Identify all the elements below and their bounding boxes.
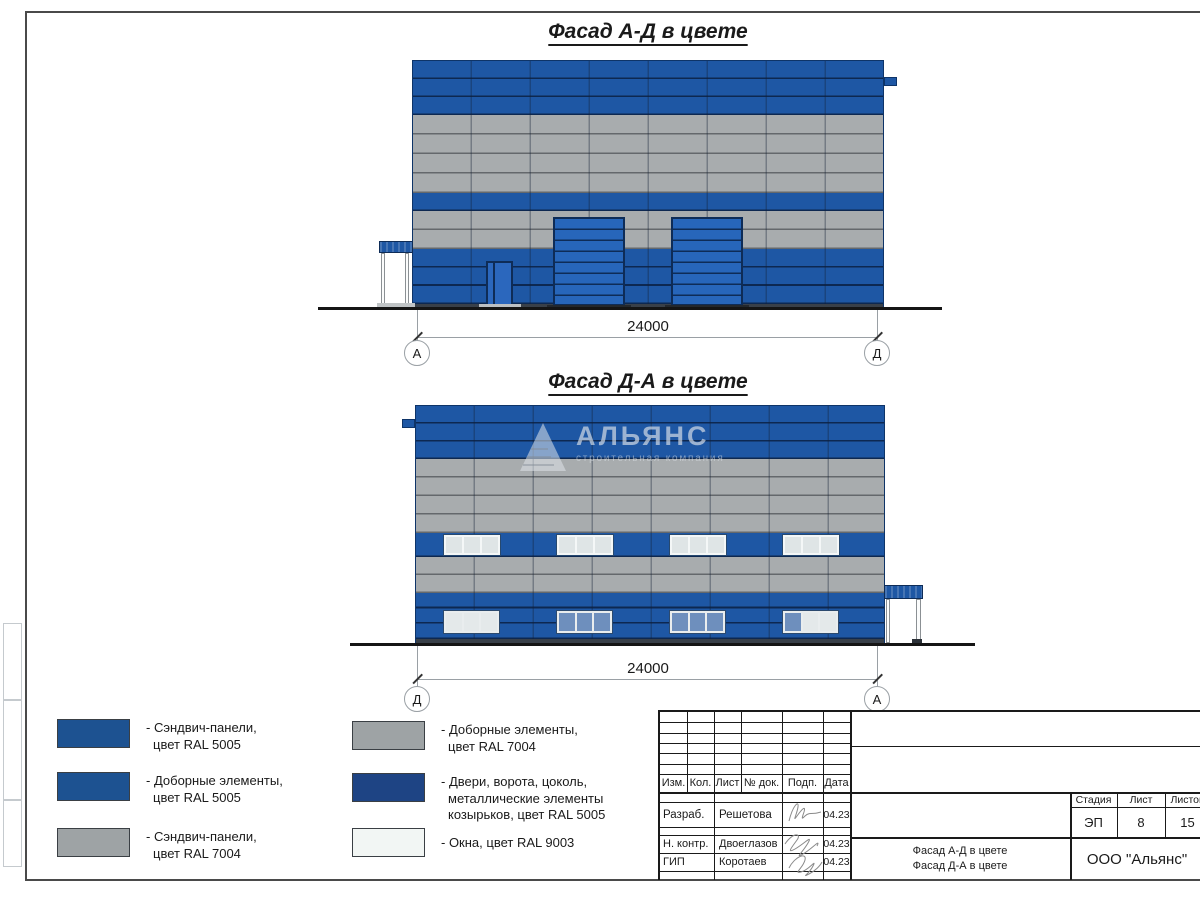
canopy-roof	[884, 585, 923, 599]
role-gip: ГИП	[660, 853, 717, 871]
stage-value: ЭП	[1070, 808, 1117, 837]
divider	[660, 764, 850, 765]
sheet-label: Лист	[1117, 793, 1165, 807]
axis-marker-a: А	[404, 340, 430, 366]
col-list: Лист	[714, 774, 741, 792]
role-nkontr: Н. контр.	[660, 835, 717, 853]
divider	[660, 753, 850, 754]
window	[782, 534, 840, 556]
legend-swatch	[57, 828, 130, 857]
panel-joints	[413, 61, 883, 304]
watermark-subtitle: строительная компания	[576, 453, 725, 464]
divider	[660, 792, 850, 794]
facade-da-title: Фасад Д-А в цвете	[412, 370, 884, 394]
alliance-logo-icon	[518, 421, 568, 473]
window	[669, 534, 727, 556]
gate-2	[671, 217, 743, 306]
entrance-door	[486, 261, 513, 306]
divider	[660, 733, 850, 734]
col-podp: Подп.	[782, 774, 823, 792]
name-reshetova: Решетова	[716, 802, 785, 827]
canopy-roof	[379, 241, 413, 253]
legend-item: - Двери, ворота, цоколь,металлические эл…	[352, 773, 605, 824]
legend-swatch	[57, 719, 130, 748]
margin-stamp-box	[3, 700, 22, 800]
window	[556, 610, 613, 634]
divider	[660, 722, 850, 723]
legend-swatch	[352, 828, 425, 857]
col-data: Дата	[823, 774, 850, 792]
legend-item: - Сэндвич-панели,цвет RAL 7004	[57, 828, 257, 862]
watermark-title: АЛЬЯНС	[576, 421, 725, 451]
col-kol: Кол.	[687, 774, 714, 792]
canopy-post	[886, 599, 890, 643]
window	[443, 534, 501, 556]
window	[443, 610, 500, 634]
roof-outlet	[884, 77, 897, 86]
legend-item: - Окна, цвет RAL 9003	[352, 828, 574, 857]
company-watermark: АЛЬЯНС строительная компания	[518, 421, 725, 473]
legend-label: - Окна, цвет RAL 9003	[441, 828, 574, 857]
drawing-sheet: Фасад А-Д в цвете 24000 А Д Фасад Д-А в …	[0, 0, 1200, 900]
date-razrab: 04.23	[823, 802, 850, 827]
legend-swatch	[352, 721, 425, 750]
document-title: Фасад А-Д в цвете Фасад Д-А в цвете	[850, 838, 1070, 880]
stage-label: Стадия	[1070, 793, 1117, 807]
dimension-value: 24000	[412, 318, 884, 335]
legend-label: - Двери, ворота, цоколь,металлические эл…	[441, 773, 605, 824]
signature-dvoeglazov-korotaev	[781, 828, 825, 878]
legend-swatch	[352, 773, 425, 802]
canopy-post	[381, 253, 385, 307]
window	[782, 610, 839, 634]
legend-label: - Доборные элементы,цвет RAL 7004	[441, 721, 578, 755]
legend-label: - Сэндвич-панели,цвет RAL 5005	[146, 719, 257, 753]
axis-marker-d: Д	[864, 340, 890, 366]
dimension-line	[417, 337, 877, 338]
margin-stamp-box	[3, 800, 22, 867]
date-nkontr: 04.23	[823, 835, 850, 853]
facade-ad-title: Фасад А-Д в цвете	[412, 20, 884, 44]
ground-line	[350, 643, 975, 646]
frame-left-line	[25, 11, 27, 881]
canopy-post	[405, 253, 409, 307]
canopy-post	[916, 599, 921, 643]
signature-reshetova	[783, 797, 823, 829]
window	[556, 534, 614, 556]
facade-ad-drawing	[412, 60, 884, 308]
sheet-number: 8	[1117, 808, 1165, 837]
legend-item: - Сэндвич-панели,цвет RAL 5005	[57, 719, 257, 753]
role-razrab: Разраб.	[660, 802, 717, 827]
legend-swatch	[57, 772, 130, 801]
legend-item: - Доборные элементы,цвет RAL 5005	[57, 772, 283, 806]
col-izm: Изм.	[660, 774, 687, 792]
legend-item: - Доборные элементы,цвет RAL 7004	[352, 721, 578, 755]
sheets-total: 15	[1165, 808, 1200, 837]
divider	[660, 743, 850, 744]
ground-line	[318, 307, 942, 310]
legend-label: - Сэндвич-панели,цвет RAL 7004	[146, 828, 257, 862]
divider	[850, 746, 1200, 747]
legend-label: - Доборные элементы,цвет RAL 5005	[146, 772, 283, 806]
col-ndoc: № док.	[741, 774, 782, 792]
frame-top-line	[25, 11, 1200, 13]
axis-marker-a: А	[864, 686, 890, 712]
sheets-label: Листов	[1165, 793, 1200, 807]
name-dvoeglazov: Двоеглазов	[716, 835, 785, 853]
company-name: ООО "Альянс"	[1072, 838, 1200, 880]
name-korotaev: Коротаев	[716, 853, 785, 871]
dimension-value: 24000	[412, 660, 884, 677]
gate-1	[553, 217, 625, 306]
axis-marker-d: Д	[404, 686, 430, 712]
door-leaf-line	[493, 263, 495, 304]
title-block: Изм. Кол. Лист № док. Подп. Дата Разраб.…	[658, 710, 1200, 880]
dimension-line	[417, 679, 877, 680]
date-gip: 04.23	[823, 853, 850, 871]
margin-stamp-box	[3, 623, 22, 700]
roof-outlet	[402, 419, 415, 428]
window	[669, 610, 726, 634]
